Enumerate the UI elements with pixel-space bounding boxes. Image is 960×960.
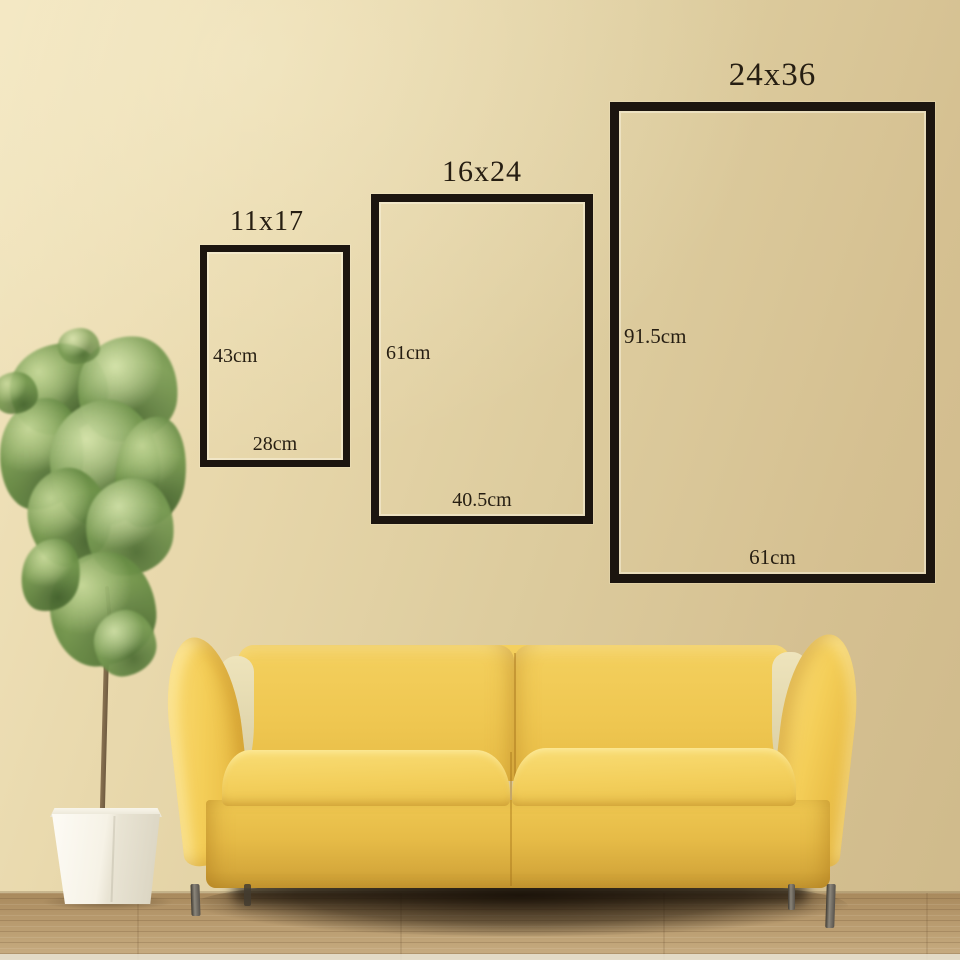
frame-outline: 43cm 28cm [200,245,350,467]
sofa-leg-front-right [825,884,836,928]
frame-height-label: 61cm [386,342,430,365]
sofa-leg-front-left [190,884,200,916]
sofa-leg-rear-right [788,884,795,910]
frame-outline: 61cm 40.5cm [371,194,593,524]
frame-height-label: 91.5cm [624,324,686,349]
floor-edge-strip [0,954,960,960]
sofa-cushion-left [222,750,510,806]
frame-size-title: 16x24 [371,155,593,189]
sofa-leg-rear-left [244,884,251,906]
frame-height-label: 43cm [213,345,257,368]
room-scene: 11x17 43cm 28cm 16x24 61cm 40.5cm 24x36 … [0,0,960,960]
sofa-back-seam [514,653,516,781]
frame-outline: 91.5cm 61cm [610,102,935,583]
frame-width-label: 28cm [207,433,343,456]
sofa-center-seam [510,752,512,886]
frame-size-title: 24x36 [610,57,935,94]
frame-width-label: 61cm [619,545,926,570]
frame-width-label: 40.5cm [379,489,585,512]
foliage-blob [58,328,100,364]
sofa-base [206,800,830,888]
frame-size-title: 11x17 [192,206,342,238]
plant-pot [52,814,160,904]
sofa-cushion-right [512,748,796,806]
